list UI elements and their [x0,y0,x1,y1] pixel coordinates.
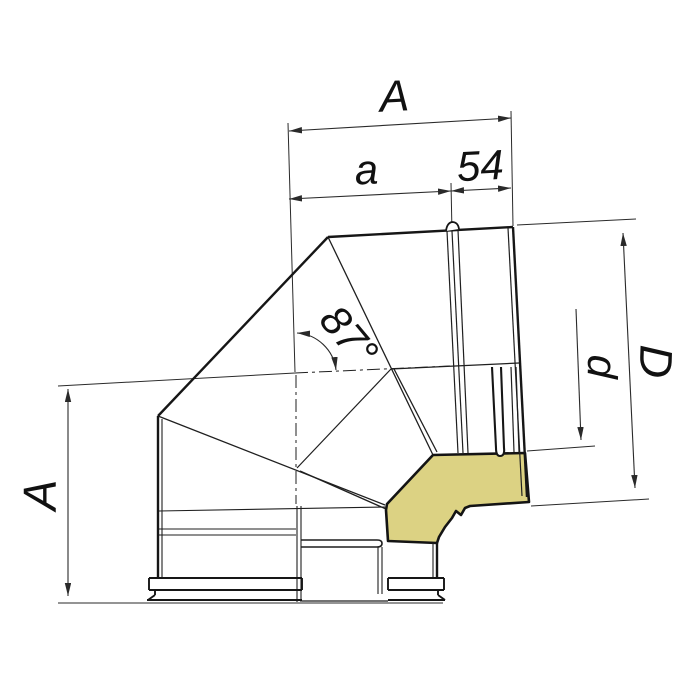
label-dim-A-left: A [14,480,66,514]
label-dim-d: d [579,354,627,381]
label-dim-D: D [629,344,682,379]
label-dim-54: 54 [456,141,505,190]
label-dim-A-top: A [375,71,410,122]
insulation-cutaway [386,453,529,543]
cut-edge-wedge [297,369,391,468]
bottom-flange [147,578,445,601]
technical-drawing-page: A a 54 87° A D d [0,0,700,700]
inner-pipe-end-ring [301,540,382,547]
label-dim-a: a [353,145,379,193]
inner-pipe-rolled-end [492,367,504,456]
joint-lower [158,416,385,505]
outlet-socket-lines [447,230,519,456]
elbow-technical-drawing: A a 54 87° A D d [0,0,700,700]
top-edge [328,227,513,237]
label-angle-87: 87° [311,296,388,375]
bottom-pipe-lines [159,507,385,594]
outer-shell-outline [158,222,527,578]
back-diagonal [158,237,328,416]
elbow-body [147,222,529,602]
